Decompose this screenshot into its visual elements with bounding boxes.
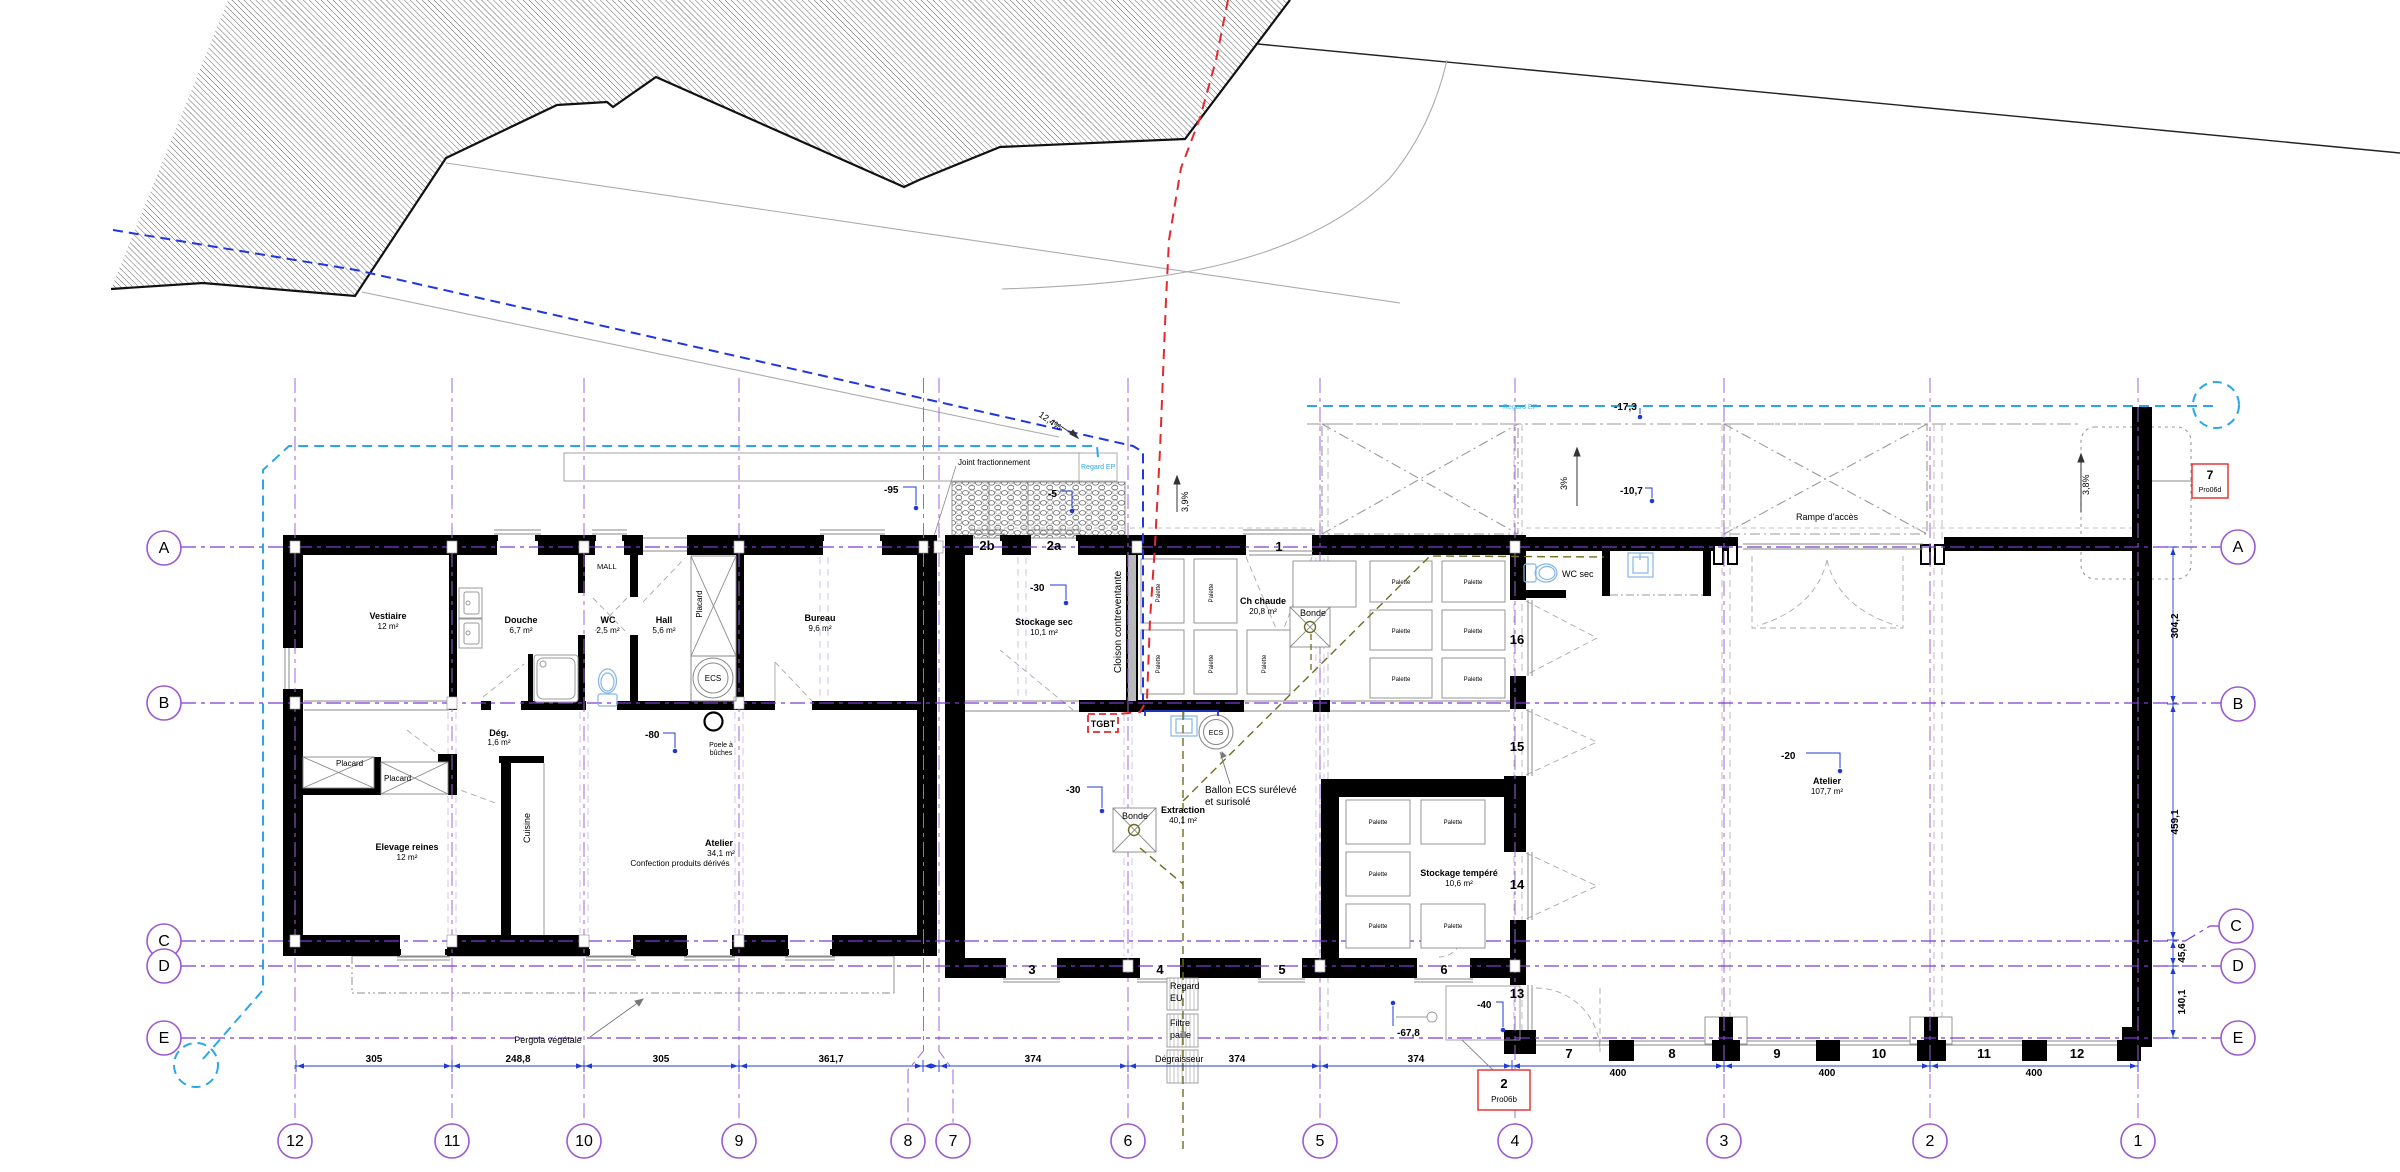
svg-text:9: 9 [735, 1133, 744, 1150]
svg-text:Bonde: Bonde [1122, 811, 1148, 821]
svg-text:Palette: Palette [1262, 654, 1268, 673]
svg-text:Placard: Placard [695, 590, 704, 617]
svg-text:3,9%: 3,9% [1180, 491, 1190, 512]
svg-text:Elevage reines: Elevage reines [375, 842, 438, 852]
svg-text:9,6 m²: 9,6 m² [808, 624, 831, 633]
svg-text:45,6: 45,6 [2177, 943, 2188, 963]
svg-text:-80: -80 [645, 730, 660, 741]
svg-text:Palette: Palette [1392, 677, 1411, 683]
svg-text:13: 13 [1510, 986, 1524, 1001]
svg-text:Palette: Palette [1209, 583, 1215, 602]
svg-text:7: 7 [2207, 468, 2214, 482]
svg-text:374: 374 [1408, 1054, 1425, 1065]
svg-text:E: E [159, 1030, 170, 1047]
svg-text:B: B [2233, 696, 2244, 713]
svg-text:305: 305 [653, 1054, 670, 1065]
svg-text:459,1: 459,1 [2170, 809, 2181, 834]
svg-text:-20: -20 [1781, 751, 1796, 762]
svg-text:Vestiaire: Vestiaire [369, 611, 406, 621]
svg-text:12,4%: 12,4% [1037, 409, 1064, 432]
svg-text:Rampe d’accès: Rampe d’accès [1796, 512, 1859, 522]
svg-text:304,2: 304,2 [2170, 613, 2181, 638]
svg-text:4: 4 [1156, 962, 1164, 977]
svg-text:EU: EU [1170, 993, 1183, 1003]
svg-text:361,7: 361,7 [818, 1054, 843, 1065]
svg-text:15: 15 [1510, 739, 1524, 754]
svg-text:3,8%: 3,8% [2081, 474, 2091, 495]
svg-text:248,8: 248,8 [505, 1054, 530, 1065]
svg-text:Palette: Palette [1209, 654, 1215, 673]
svg-text:C: C [2230, 918, 2242, 935]
svg-text:-95: -95 [884, 485, 899, 496]
svg-text:Bureau: Bureau [804, 613, 835, 623]
svg-text:Bonde: Bonde [1300, 608, 1326, 618]
svg-text:Filtre: Filtre [1170, 1018, 1190, 1028]
svg-text:Pro06d: Pro06d [2199, 487, 2222, 494]
svg-text:et surisolé: et surisolé [1205, 797, 1251, 808]
svg-text:D: D [2232, 958, 2244, 975]
svg-text:10,6 m²: 10,6 m² [1445, 879, 1473, 888]
svg-text:4: 4 [1511, 1133, 1520, 1150]
svg-text:Palette: Palette [1464, 629, 1483, 635]
svg-text:Placard: Placard [336, 759, 363, 768]
svg-text:1: 1 [1275, 539, 1282, 554]
svg-text:Regard EP: Regard EP [1081, 464, 1116, 471]
svg-text:Confection produits dérivés: Confection produits dérivés [630, 859, 729, 868]
svg-text:Stockage tempéré: Stockage tempéré [1420, 868, 1498, 878]
svg-text:WC sec: WC sec [1562, 569, 1594, 579]
svg-text:34,1 m²: 34,1 m² [707, 849, 735, 858]
svg-text:5: 5 [1316, 1133, 1325, 1150]
svg-text:Cloison contreventante: Cloison contreventante [1113, 570, 1124, 673]
svg-text:Palette: Palette [1464, 580, 1483, 586]
svg-text:-30: -30 [1066, 785, 1081, 796]
svg-text:MALL: MALL [597, 562, 617, 571]
svg-text:Palette: Palette [1444, 820, 1463, 826]
svg-text:Poele à: Poele à [709, 742, 733, 749]
svg-text:10,1 m²: 10,1 m² [1030, 628, 1058, 637]
svg-text:Joint fractionnement: Joint fractionnement [958, 458, 1031, 467]
svg-text:6,7 m²: 6,7 m² [509, 626, 532, 635]
svg-text:Stockage sec: Stockage sec [1015, 617, 1073, 627]
svg-text:3%: 3% [1559, 477, 1569, 490]
svg-text:Palette: Palette [1444, 924, 1463, 930]
svg-text:E: E [2233, 1030, 2244, 1047]
svg-text:Cuisine: Cuisine [522, 813, 532, 843]
svg-text:-17,3: -17,3 [1614, 402, 1637, 413]
svg-text:400: 400 [1610, 1068, 1627, 1079]
svg-text:2,5 m²: 2,5 m² [596, 626, 619, 635]
svg-text:140,1: 140,1 [2177, 989, 2188, 1014]
svg-text:7: 7 [1565, 1046, 1572, 1061]
svg-text:Palette: Palette [1464, 677, 1483, 683]
svg-text:6: 6 [1440, 962, 1447, 977]
svg-text:Pergola végétale: Pergola végétale [514, 1035, 582, 1045]
svg-text:Palette: Palette [1369, 924, 1388, 930]
svg-text:11: 11 [444, 1133, 461, 1150]
svg-text:Ballon ECS surélevé: Ballon ECS surélevé [1205, 785, 1297, 796]
svg-text:107,7 m²: 107,7 m² [1811, 787, 1844, 796]
svg-text:Ch chaude: Ch chaude [1240, 596, 1286, 606]
svg-text:20,8 m²: 20,8 m² [1249, 607, 1277, 616]
svg-text:374: 374 [1229, 1054, 1246, 1065]
svg-text:TGBT: TGBT [1091, 719, 1116, 729]
svg-text:8: 8 [1668, 1046, 1675, 1061]
svg-text:-30: -30 [1030, 583, 1045, 594]
svg-text:40,1 m²: 40,1 m² [1169, 816, 1197, 825]
svg-text:12 m²: 12 m² [397, 853, 418, 862]
svg-text:Pro06b: Pro06b [1491, 1095, 1517, 1104]
svg-text:400: 400 [1819, 1068, 1836, 1079]
svg-text:ECS: ECS [705, 674, 721, 683]
svg-text:Palette: Palette [1369, 820, 1388, 826]
svg-text:10: 10 [575, 1133, 593, 1150]
svg-text:2a: 2a [1047, 538, 1062, 553]
svg-text:Atelier: Atelier [1813, 776, 1842, 786]
svg-text:10: 10 [1872, 1046, 1886, 1061]
svg-text:400: 400 [2026, 1068, 2043, 1079]
svg-text:305: 305 [366, 1054, 383, 1065]
svg-text:Placard: Placard [384, 774, 411, 783]
svg-text:1: 1 [2134, 1133, 2143, 1150]
svg-text:Dég.: Dég. [489, 728, 509, 738]
svg-text:Regard: Regard [1170, 981, 1200, 991]
svg-text:12 m²: 12 m² [378, 622, 399, 631]
svg-text:-10,7: -10,7 [1620, 486, 1643, 497]
svg-text:Palette: Palette [1392, 580, 1411, 586]
svg-text:374: 374 [1025, 1054, 1042, 1065]
svg-text:2: 2 [1926, 1133, 1935, 1150]
svg-text:14: 14 [1510, 877, 1525, 892]
svg-text:ECS: ECS [1209, 730, 1224, 737]
svg-text:-40: -40 [1477, 1000, 1492, 1011]
svg-text:A: A [2233, 539, 2244, 556]
svg-text:3: 3 [1720, 1133, 1729, 1150]
svg-text:2b: 2b [979, 538, 994, 553]
svg-text:12: 12 [286, 1133, 304, 1150]
svg-text:6: 6 [1124, 1133, 1133, 1150]
svg-text:Palette: Palette [1156, 583, 1162, 602]
svg-text:8: 8 [904, 1133, 913, 1150]
svg-text:1,6 m²: 1,6 m² [487, 738, 510, 747]
svg-text:2: 2 [1500, 1076, 1507, 1091]
svg-text:12: 12 [2070, 1046, 2084, 1061]
svg-text:Atelier: Atelier [705, 838, 734, 848]
svg-text:5: 5 [1278, 962, 1285, 977]
svg-text:Palette: Palette [1369, 872, 1388, 878]
svg-text:D: D [158, 958, 170, 975]
svg-text:Extraction: Extraction [1161, 805, 1205, 815]
svg-text:B: B [159, 695, 170, 712]
svg-text:9: 9 [1773, 1046, 1780, 1061]
svg-text:A: A [159, 540, 170, 557]
svg-text:paille: paille [1170, 1030, 1191, 1040]
svg-text:-5: -5 [1048, 489, 1057, 500]
svg-text:11: 11 [1977, 1046, 1991, 1061]
svg-text:bûches: bûches [710, 750, 733, 757]
svg-text:5,6 m²: 5,6 m² [652, 626, 675, 635]
svg-text:Douche: Douche [504, 615, 537, 625]
svg-text:C: C [158, 933, 170, 950]
svg-text:3: 3 [1028, 962, 1035, 977]
svg-text:16: 16 [1510, 632, 1524, 647]
svg-text:Palette: Palette [1392, 629, 1411, 635]
svg-text:-67,8: -67,8 [1397, 1028, 1420, 1039]
svg-text:Hall: Hall [656, 615, 673, 625]
svg-text:Regard EP: Regard EP [1503, 404, 1538, 411]
svg-text:Dégraisseur: Dégraisseur [1155, 1054, 1204, 1064]
svg-text:Palette: Palette [1156, 654, 1162, 673]
svg-text:WC: WC [601, 615, 616, 625]
svg-text:7: 7 [949, 1133, 958, 1150]
